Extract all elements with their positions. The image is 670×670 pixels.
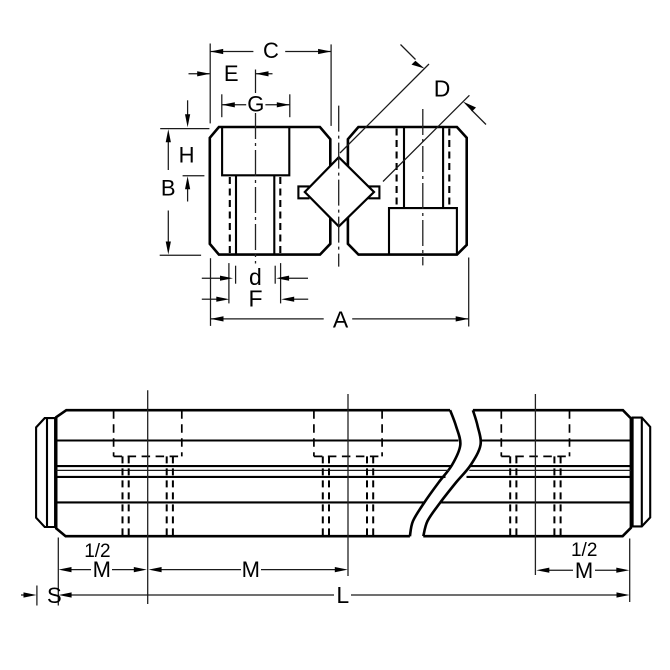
svg-text:F: F xyxy=(248,286,262,312)
svg-text:B: B xyxy=(161,176,176,201)
svg-text:S: S xyxy=(47,583,62,608)
svg-text:H: H xyxy=(179,142,195,167)
svg-text:M: M xyxy=(242,557,260,582)
svg-text:G: G xyxy=(247,92,264,117)
svg-text:L: L xyxy=(336,582,349,608)
svg-text:C: C xyxy=(263,38,279,63)
svg-text:A: A xyxy=(333,306,349,332)
svg-text:M: M xyxy=(93,557,111,582)
svg-text:D: D xyxy=(434,75,451,101)
svg-text:M: M xyxy=(575,558,593,583)
svg-text:E: E xyxy=(224,61,239,86)
